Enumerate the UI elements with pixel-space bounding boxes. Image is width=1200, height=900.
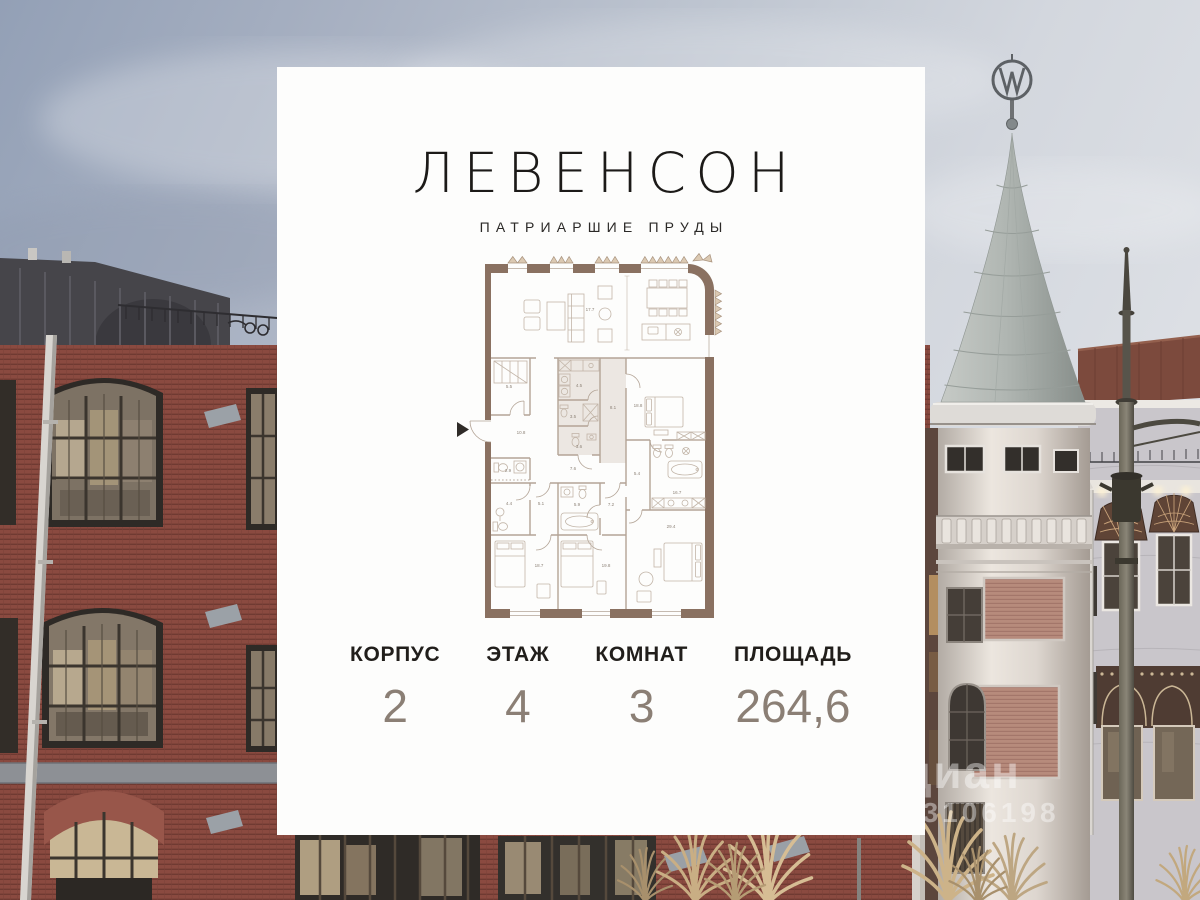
room-label: 29.4	[667, 524, 676, 529]
entry-arrow-icon	[457, 422, 469, 437]
room-label: 4.4	[506, 501, 513, 506]
stat-label: ЭТАЖ	[486, 643, 549, 667]
entry-door	[44, 791, 164, 900]
stat-value: 3	[595, 679, 688, 733]
stat-value: 2	[350, 679, 440, 733]
stat-value: 264,6	[734, 679, 852, 733]
arched-window-lower-right	[246, 645, 278, 752]
stats-row: КОРПУС 2 ЭТАЖ 4 КОМНАТ 3 ПЛОЩАДЬ 264,6	[277, 643, 925, 733]
stat-komnat: КОМНАТ 3	[595, 643, 688, 733]
room-label: 2.9	[505, 468, 512, 473]
listing-image: циан 53106198 ЛЕВЕНСОН ПАТРИАРШИЕ ПРУДЫ	[0, 0, 1200, 900]
room-label: 5.1	[538, 501, 545, 506]
floorplan: 17.7 5.5 10.8 4.5 3.5 3.6 8.1 18.8 2.9 7…	[440, 250, 770, 640]
room-label: 7.2	[608, 502, 615, 507]
room-label: 16.7	[673, 490, 682, 495]
stat-etazh: ЭТАЖ 4	[486, 643, 549, 733]
room-label: 18.8	[634, 403, 643, 408]
project-title: ЛЕВЕНСОН	[277, 141, 925, 205]
room-label: 5.5	[506, 384, 513, 389]
room-label: 3.6	[576, 444, 583, 449]
stat-label: ПЛОЩАДЬ	[734, 643, 852, 667]
arched-window-lower	[42, 608, 163, 748]
room-label: 5.4	[634, 471, 641, 476]
stat-label: КОМНАТ	[595, 643, 688, 667]
listing-card: ЛЕВЕНСОН ПАТРИАРШИЕ ПРУДЫ	[277, 67, 925, 835]
project-subtitle: ПАТРИАРШИЕ ПРУДЫ	[277, 219, 925, 235]
stat-ploshchad: ПЛОЩАДЬ 264,6	[734, 643, 852, 733]
room-label: 7.6	[570, 466, 577, 471]
stat-korpus: КОРПУС 2	[350, 643, 440, 733]
room-label: 19.8	[602, 563, 611, 568]
arched-window-upper-right	[246, 388, 278, 530]
weathervane-icon	[993, 54, 1031, 130]
room-label: 17.7	[586, 307, 595, 312]
room-label: 3.5	[570, 414, 577, 419]
room-label: 10.8	[517, 430, 526, 435]
stat-value: 4	[486, 679, 549, 733]
stat-label: КОРПУС	[350, 643, 440, 667]
room-label: 5.9	[574, 502, 581, 507]
arched-window-upper	[45, 378, 163, 527]
room-label: 8.1	[610, 405, 617, 410]
crenellation-band	[936, 516, 1092, 549]
room-label: 4.5	[576, 383, 583, 388]
room-label: 18.7	[535, 563, 544, 568]
